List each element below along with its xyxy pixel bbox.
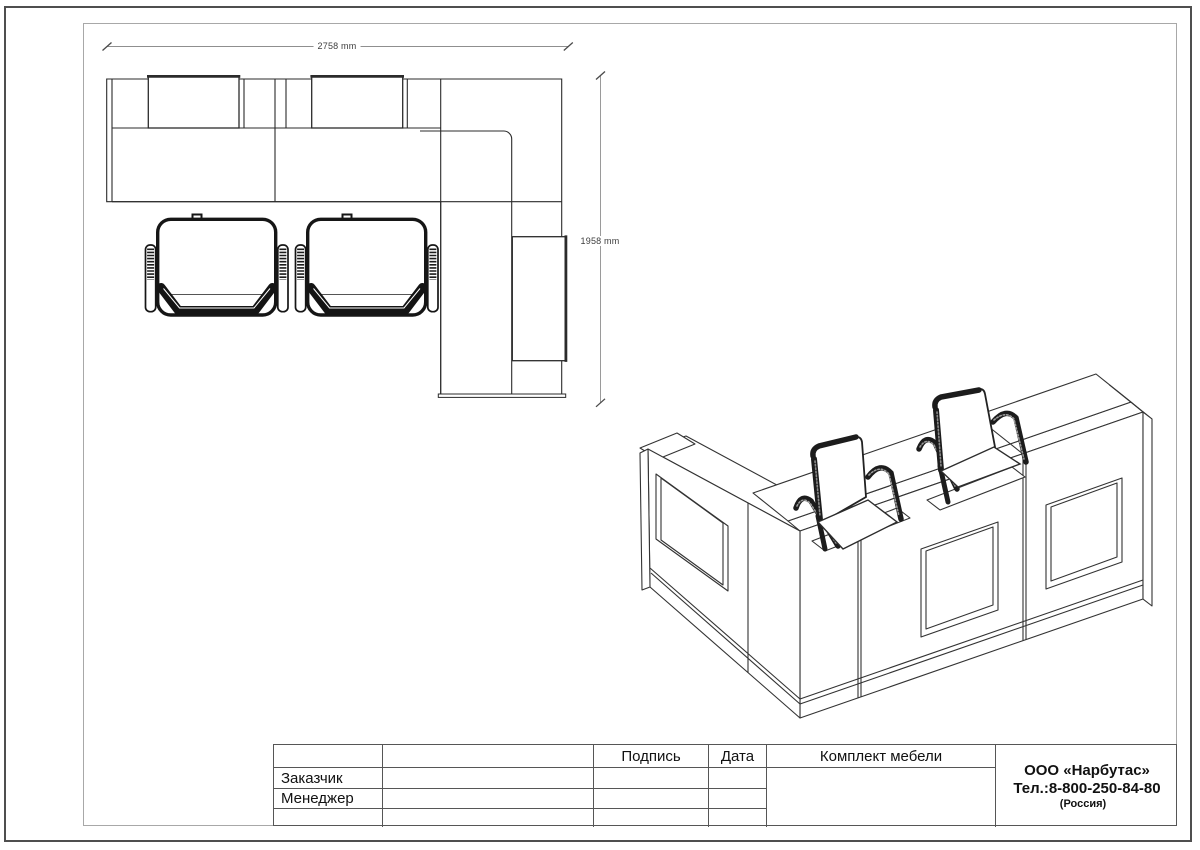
plan-chair-2 (296, 215, 439, 316)
company-name: ООО «Нарбутас» (1024, 762, 1150, 779)
tb-blank-cell (383, 809, 594, 827)
dimension-width-label: 2758 mm (314, 41, 361, 51)
tb-empty-cell (274, 745, 383, 768)
title-block: Подпись Дата Комплект мебели ООО «Нарбут… (273, 744, 1177, 826)
tb-date-header: Дата (709, 745, 767, 768)
drawing-canvas (0, 0, 1200, 850)
company-country: (Россия) (1060, 798, 1114, 810)
tb-blank-cell (274, 809, 383, 827)
tb-manager-date (709, 789, 767, 809)
tb-manager-signature (594, 789, 709, 809)
plan-chair-1 (146, 215, 289, 316)
company-phone: Тел.:8-800-250-84-80 (1013, 780, 1160, 797)
tb-project-blank (767, 768, 996, 827)
tb-empty-cell (383, 745, 594, 768)
dimension-height-label: 1958 mm (577, 236, 624, 246)
tb-manager-value (383, 789, 594, 809)
page: { "dimensions": { "width_label": "2758 m… (0, 0, 1200, 850)
tb-signature-header: Подпись (594, 745, 709, 768)
iso-view (640, 374, 1152, 718)
tb-customer-label: Заказчик (274, 768, 383, 789)
tb-project-title: Комплект мебели (767, 745, 996, 768)
tb-blank-cell (709, 809, 767, 827)
tb-company-cell: ООО «Нарбутас» Тел.:8-800-250-84-80 (Рос… (996, 745, 1178, 827)
tb-manager-label: Менеджер (274, 789, 383, 809)
tb-customer-signature (594, 768, 709, 789)
tb-customer-date (709, 768, 767, 789)
tb-customer-value (383, 768, 594, 789)
tb-blank-cell (594, 809, 709, 827)
